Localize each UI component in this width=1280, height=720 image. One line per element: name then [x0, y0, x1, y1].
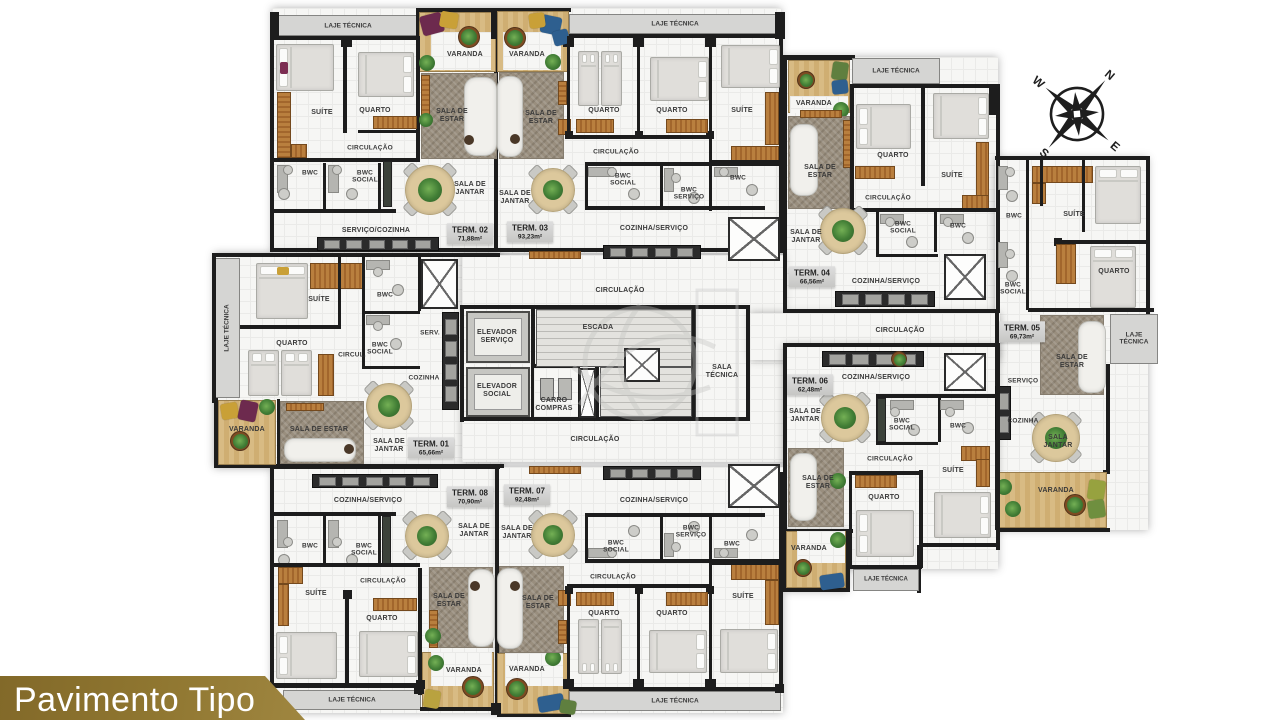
svg-text:W: W: [1030, 73, 1048, 91]
svg-text:S: S: [1037, 145, 1052, 161]
svg-text:N: N: [1102, 67, 1118, 83]
svg-text:E: E: [1108, 138, 1123, 154]
